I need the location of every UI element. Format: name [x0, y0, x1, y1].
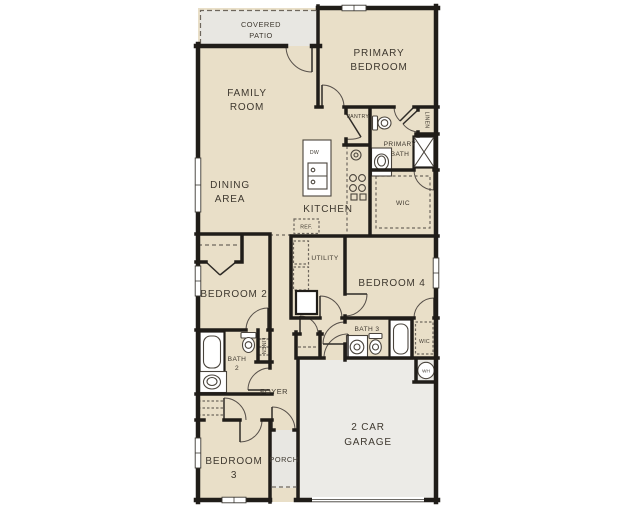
- bedroom2-label: BEDROOM 2: [200, 289, 267, 300]
- covered-patio-label: COVERED: [241, 20, 281, 29]
- floor-plan-drawing: COVERED PATIO PRIMARY BEDROOM FAMILY ROO…: [0, 0, 640, 512]
- bedroom4-label: BEDROOM 4: [358, 278, 425, 289]
- family-room-label-2: ROOM: [230, 102, 264, 113]
- kitchen-island: [303, 140, 331, 196]
- bath3-toilet-icon: [369, 334, 382, 355]
- bedroom3-side-window: [195, 438, 201, 468]
- bedroom3-rear-window: [222, 497, 246, 503]
- dining-area-label: DINING: [210, 180, 250, 191]
- utility-label: UTILITY: [311, 255, 339, 262]
- water-heater-label: WH: [422, 369, 430, 374]
- primary-bath-label-2: BATH: [391, 151, 410, 158]
- furnace-icon: [296, 291, 317, 314]
- bath3-tub-icon: [390, 320, 413, 359]
- bath3-label: BATH 3: [355, 326, 380, 333]
- primary-shower-icon: [414, 137, 435, 168]
- bedroom3-label: BEDROOM: [205, 456, 262, 467]
- refrigerator-label: REF.: [300, 225, 312, 231]
- hall-linen-label: LINEN: [260, 338, 266, 355]
- primary-wic-label: WIC: [396, 200, 410, 207]
- bath2-sink-icon: [200, 372, 227, 393]
- dining-area-label-2: AREA: [215, 194, 245, 205]
- garage-label: 2 CAR: [351, 422, 384, 433]
- bath2-label-2: 2: [235, 365, 239, 372]
- kitchen-label: KITCHEN: [303, 204, 353, 215]
- garage-label-2: GARAGE: [344, 437, 392, 448]
- pantry-label: PANTRY: [347, 114, 370, 120]
- garage-door: [312, 497, 424, 504]
- bath2-tub-icon: [200, 332, 225, 373]
- bedroom4-wic-label: WIC: [419, 339, 430, 345]
- primary-bedroom-label-2: BEDROOM: [350, 62, 407, 73]
- bath2-label: BATH: [228, 356, 247, 363]
- primary-sink-icon: [372, 148, 392, 176]
- primary-bedroom-label: PRIMARY: [354, 48, 405, 59]
- dishwasher-label: DW: [310, 150, 319, 156]
- bedroom4-window: [433, 258, 439, 288]
- bath3-sink-icon: [347, 336, 368, 359]
- primary-bedroom-window: [342, 5, 366, 11]
- porch-label: PORCH: [269, 455, 298, 464]
- bedroom3-label-2: 3: [231, 470, 237, 481]
- family-room-label: FAMILY: [227, 88, 267, 99]
- covered-patio-label-2: PATIO: [249, 31, 273, 40]
- bath2-toilet-icon: [241, 333, 256, 353]
- primary-bath-label: PRIMARY: [384, 141, 417, 148]
- dining-window: [195, 158, 201, 212]
- floor-plan-page: COVERED PATIO PRIMARY BEDROOM FAMILY ROO…: [0, 0, 640, 512]
- primary-toilet-icon: [373, 116, 392, 130]
- foyer-label: FOYER: [260, 387, 288, 396]
- primary-linen-label: LINEN: [424, 112, 430, 129]
